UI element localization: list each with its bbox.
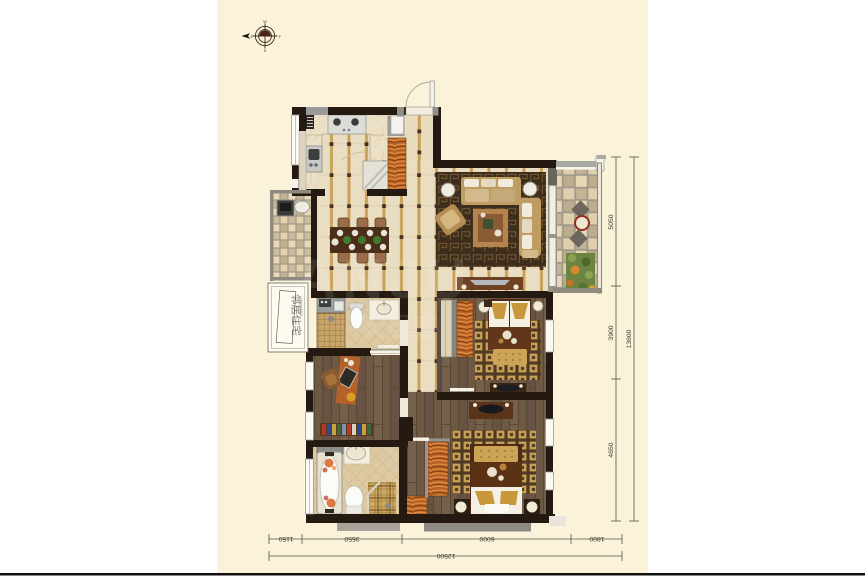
svg-text:ANJU: ANJU: [296, 247, 472, 310]
svg-text:12500: 12500: [436, 552, 455, 559]
svg-text:安居客: 安居客: [360, 312, 439, 342]
svg-text:1800: 1800: [589, 535, 604, 542]
svg-text:6000: 6000: [479, 535, 494, 542]
svg-text:W: W: [263, 20, 267, 24]
svg-text:4650: 4650: [608, 442, 615, 457]
svg-text:13600: 13600: [626, 329, 633, 348]
svg-text:3550: 3550: [344, 535, 359, 542]
svg-text:5050: 5050: [608, 214, 615, 229]
svg-text:1150: 1150: [278, 535, 293, 542]
svg-text:3900: 3900: [608, 325, 615, 340]
